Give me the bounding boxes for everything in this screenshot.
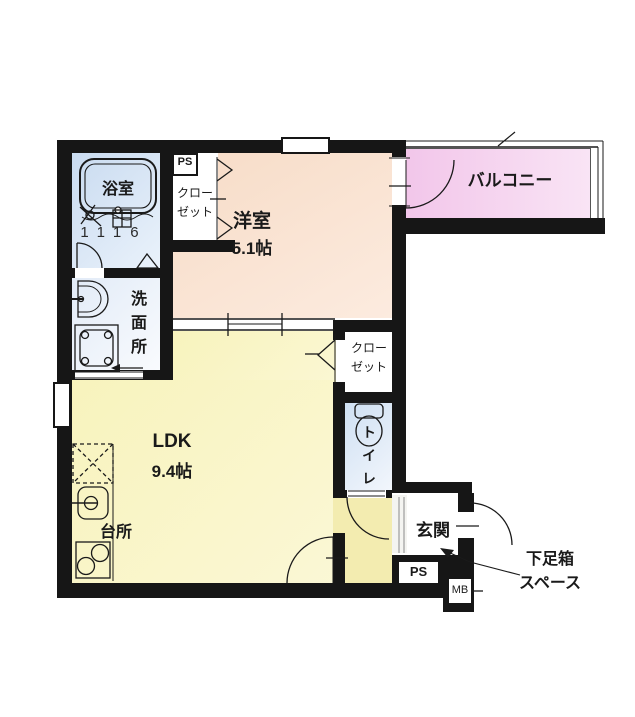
bathtub-size-label: 1116 xyxy=(72,224,156,241)
ldk-hall-door-arc xyxy=(287,537,348,583)
mb-label: MB xyxy=(449,584,471,596)
floor-plan: 浴室 1116 PS クロー ゼット 洋室 5.1帖 バルコニー 洗面所 クロー… xyxy=(0,0,635,717)
ps-lower-label: PS xyxy=(399,564,438,579)
kitchen-label: 台所 xyxy=(94,518,138,542)
bathroom-door-arc xyxy=(77,243,102,268)
toilet-door-arc xyxy=(347,491,389,539)
ldk-label: LDK xyxy=(112,431,232,453)
western-room-size: 5.1帖 xyxy=(196,234,308,259)
washbasin-icon xyxy=(72,281,108,317)
toilet-label: トイレ xyxy=(359,422,379,496)
symbols-layer xyxy=(0,0,635,717)
shoebox-line2: スペース xyxy=(496,572,604,596)
ps-upper-label: PS xyxy=(172,156,198,168)
closet-upper-line1: クロー xyxy=(168,184,222,203)
shoebox-label: 下足箱 スペース xyxy=(496,548,604,596)
kitchen-sink-icon xyxy=(70,487,108,519)
closet-mid-line1: クロー xyxy=(344,339,394,358)
sliding-door-partition xyxy=(173,313,335,336)
ldk-size: 9.4帖 xyxy=(112,457,232,482)
bath-triangle-icon xyxy=(137,254,158,268)
bifold-door-mid-closet xyxy=(305,334,335,390)
entrance-step-lines xyxy=(399,497,404,553)
shoebox-line1: 下足箱 xyxy=(496,548,604,572)
closet-mid-line2: ゼット xyxy=(344,358,394,377)
western-room-label: 洋室 xyxy=(196,206,308,233)
stove-icon xyxy=(76,542,110,578)
entrance-label: 玄関 xyxy=(409,516,457,541)
refrigerator-space-icon xyxy=(73,444,113,483)
bathroom-label: 浴室 xyxy=(88,175,148,199)
front-door-arc xyxy=(456,503,512,545)
balcony-door-arc xyxy=(389,158,454,208)
washing-machine-icon xyxy=(75,325,118,371)
balcony-label: バルコニー xyxy=(448,166,572,191)
washroom-label: 洗面所 xyxy=(124,282,148,370)
closet-mid-label: クロー ゼット xyxy=(344,339,394,377)
